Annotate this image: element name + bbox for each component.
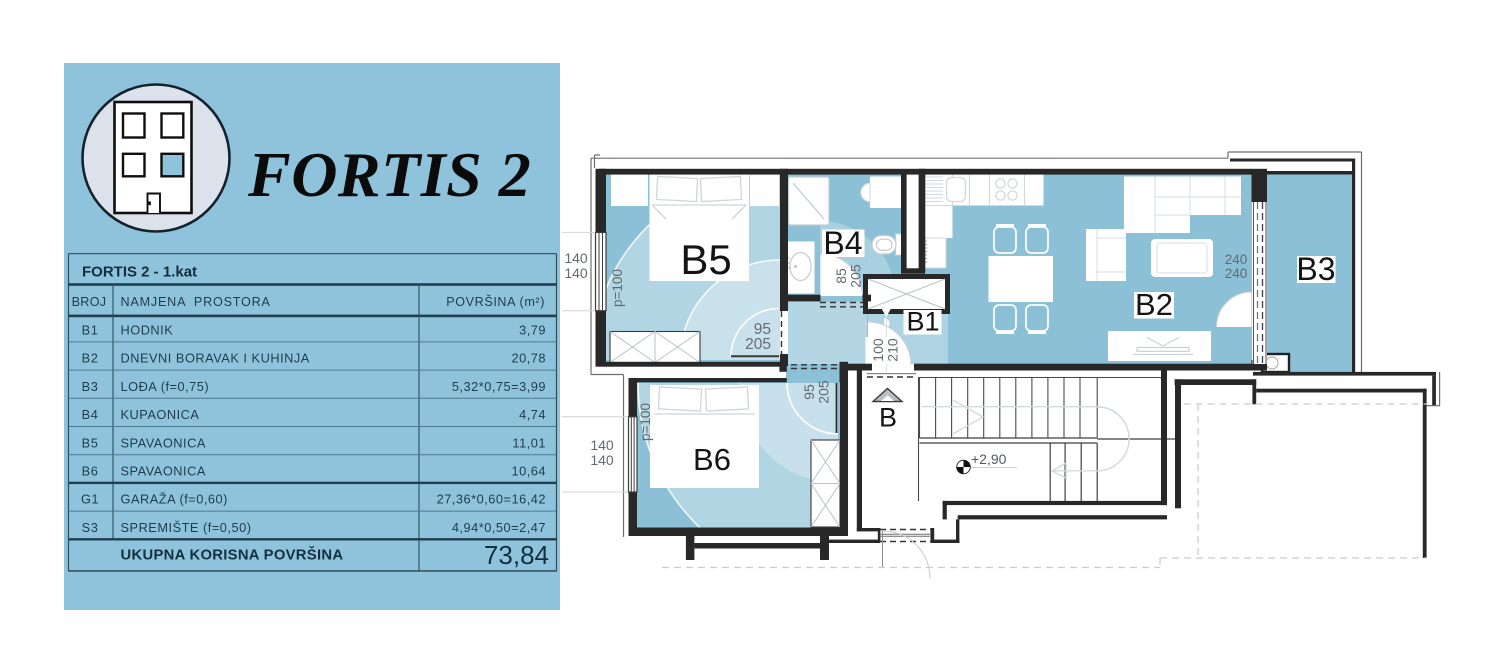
- svg-text:140140: 140140: [564, 250, 588, 281]
- svg-text:B1: B1: [82, 323, 99, 338]
- svg-text:5,32*0,75=3,99: 5,32*0,75=3,99: [452, 379, 546, 394]
- svg-text:3,79: 3,79: [519, 323, 546, 338]
- svg-text:SPAVAONICA: SPAVAONICA: [121, 435, 206, 450]
- svg-text:GARAŽA (f=0,60): GARAŽA (f=0,60): [121, 492, 228, 507]
- svg-text:FORTIS 2: FORTIS 2: [247, 139, 531, 210]
- svg-text:B1: B1: [906, 307, 939, 337]
- svg-text:B3: B3: [1296, 251, 1335, 287]
- svg-text:DNEVNI BORAVAK I KUHINJA: DNEVNI BORAVAK I KUHINJA: [121, 351, 310, 366]
- svg-text:NAMJENA PROSTORA: NAMJENA PROSTORA: [121, 295, 271, 309]
- svg-text:B5: B5: [680, 236, 731, 283]
- svg-text:B2: B2: [1135, 287, 1173, 322]
- svg-text:10,64: 10,64: [511, 464, 546, 479]
- svg-text:G1: G1: [81, 492, 99, 507]
- svg-text:KUPAONICA: KUPAONICA: [121, 407, 200, 422]
- svg-text:FORTIS 2 - 1.kat: FORTIS 2 - 1.kat: [82, 264, 197, 281]
- svg-text:POVRŠINA (m²): POVRŠINA (m²): [446, 294, 545, 309]
- svg-text:B2: B2: [82, 351, 99, 366]
- svg-text:4,74: 4,74: [519, 407, 546, 422]
- svg-text:73,84: 73,84: [484, 540, 549, 570]
- svg-text:4,94*0,50=2,47: 4,94*0,50=2,47: [452, 520, 546, 535]
- svg-text:+2,90: +2,90: [971, 451, 1007, 467]
- svg-text:B6: B6: [693, 442, 731, 477]
- svg-text:HODNIK: HODNIK: [121, 323, 174, 338]
- svg-text:p=100: p=100: [638, 403, 653, 441]
- svg-text:B5: B5: [82, 435, 99, 450]
- svg-text:LOĐA (f=0,75): LOĐA (f=0,75): [121, 379, 210, 394]
- svg-text:UKUPNA KORISNA POVRŠINA: UKUPNA KORISNA POVRŠINA: [121, 546, 344, 564]
- svg-text:B4: B4: [82, 407, 99, 422]
- svg-text:S3: S3: [82, 520, 99, 535]
- svg-text:B3: B3: [82, 379, 99, 394]
- svg-text:SPAVAONICA: SPAVAONICA: [121, 464, 206, 479]
- svg-text:100210: 100210: [870, 338, 901, 362]
- svg-text:27,36*0,60=16,42: 27,36*0,60=16,42: [437, 492, 546, 507]
- svg-text:SPREMIŠTE (f=0,50): SPREMIŠTE (f=0,50): [121, 520, 252, 535]
- svg-text:20,78: 20,78: [511, 351, 546, 366]
- svg-text:240240: 240240: [1225, 252, 1248, 281]
- svg-text:BROJ: BROJ: [72, 295, 107, 309]
- svg-text:p=100: p=100: [610, 269, 625, 307]
- svg-text:B4: B4: [823, 225, 862, 261]
- svg-text:11,01: 11,01: [512, 435, 546, 450]
- svg-text:B6: B6: [82, 464, 99, 479]
- svg-text:B: B: [879, 403, 897, 433]
- svg-text:140140: 140140: [590, 437, 614, 468]
